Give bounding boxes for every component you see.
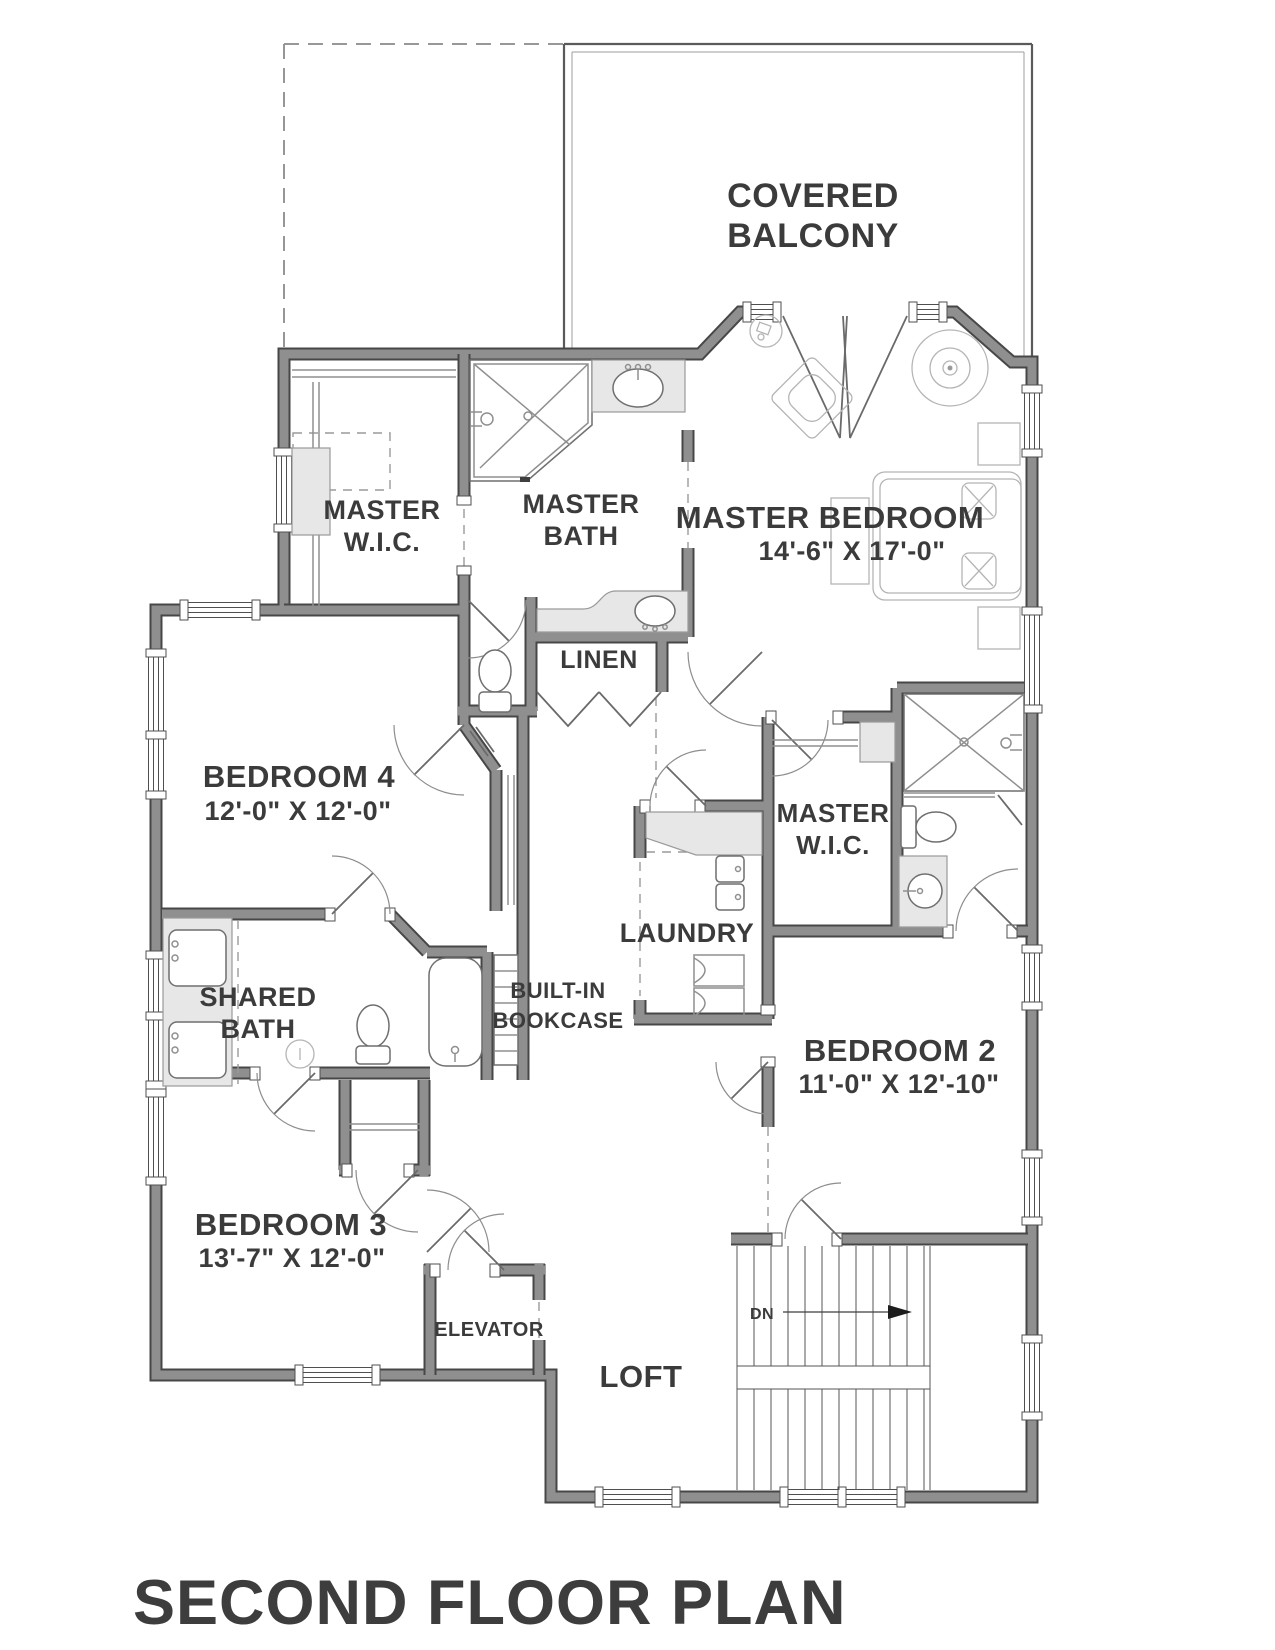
master-wic-right-door [772, 720, 828, 776]
window [146, 1089, 166, 1185]
room-label-bedroom2: BEDROOM 2 [804, 1033, 996, 1068]
master-bedroom-entry-door [688, 652, 762, 726]
window [595, 1487, 680, 1507]
bedroom3-entry-door [427, 1190, 489, 1252]
room-label-bookcase-1: BUILT-IN [510, 978, 605, 1003]
room-label-bedroom3: BEDROOM 3 [195, 1207, 387, 1242]
room-dims-bedroom2: 11'-0" X 12'-10" [798, 1069, 999, 1099]
window [1022, 1150, 1042, 1225]
room-label-shared-bath-1: SHARED [199, 982, 316, 1012]
stairs-dn-label: DN [750, 1306, 774, 1323]
window [1022, 945, 1042, 1010]
nightstand [978, 423, 1020, 465]
room-label-covered-balcony-1: COVERED [727, 177, 899, 215]
window [1022, 607, 1042, 713]
floor-plan-page: DN COVERED BALCONY MASTER W.I.C. MASTER … [0, 0, 1275, 1650]
nightstand [978, 607, 1020, 649]
bedroom2-bath-door [956, 869, 1018, 931]
room-label-master-wic-right-1: MASTER [777, 798, 890, 828]
floor-drain [286, 1040, 314, 1068]
room-label-bedroom4: BEDROOM 4 [203, 759, 396, 794]
room-label-master-wic-left-2: W.I.C. [344, 527, 421, 557]
direction-arrow [783, 1305, 912, 1319]
window [295, 1365, 380, 1385]
laundry-fixtures [646, 812, 762, 1019]
window [274, 448, 294, 532]
ceiling-fan [912, 330, 988, 406]
master-bath-vanity-bottom [537, 591, 688, 632]
window [743, 302, 781, 322]
room-dims-master-bedroom: 14'-6" X 17'-0" [758, 536, 945, 566]
master-wic-left-shelving [292, 370, 456, 606]
staircase: DN [737, 1246, 930, 1490]
linen-bifold-doors [537, 692, 661, 726]
plan-title: SECOND FLOOR PLAN [133, 1568, 847, 1638]
bay-door-opening [779, 305, 911, 319]
bedroom4-closet-rod [508, 775, 514, 905]
master-bedroom-furniture [750, 315, 1021, 649]
room-label-laundry: LAUNDRY [620, 918, 755, 948]
floor-plan-canvas: DN COVERED BALCONY MASTER W.I.C. MASTER … [0, 0, 1275, 1650]
bedroom3-closet-rod [348, 1124, 420, 1130]
room-label-master-wic-left-1: MASTER [324, 495, 441, 525]
room-label-bookcase-2: BOOKCASE [492, 1008, 623, 1033]
window [180, 600, 260, 620]
pillows [962, 483, 996, 589]
window [909, 302, 947, 322]
room-label-elevator: ELEVATOR [434, 1319, 544, 1341]
room-label-covered-balcony-2: BALCONY [727, 217, 899, 255]
roof-outline-dashed [284, 44, 564, 352]
bedroom2-loft-door [716, 1062, 768, 1114]
window [1022, 385, 1042, 457]
room-label-shared-bath-2: BATH [221, 1014, 296, 1044]
window [1022, 1335, 1042, 1420]
room-dims-bedroom3: 13'-7" X 12'-0" [198, 1243, 385, 1273]
shared-bath-hall-door [332, 856, 390, 914]
master-bath-vanity-top [592, 360, 685, 412]
room-label-linen: LINEN [560, 646, 638, 674]
laundry-door [650, 750, 706, 806]
room-label-master-bedroom: MASTER BEDROOM [676, 500, 984, 535]
water-closet-toilet [479, 650, 511, 712]
bedroom4-closet-door [394, 725, 464, 795]
shared-bath-bed3-door [257, 1073, 315, 1131]
bedroom2-stair-door [785, 1183, 841, 1239]
bathtub [429, 958, 482, 1066]
stair-treads [737, 1246, 930, 1490]
bay-double-doors [783, 316, 907, 438]
window [780, 1487, 905, 1507]
wc-door [468, 600, 526, 658]
master-wic-right-shelving [772, 722, 895, 762]
master-bath-corner-shower [470, 360, 592, 482]
room-label-loft: LOFT [600, 1359, 683, 1394]
bedroom2-bath-fixtures [899, 694, 1024, 927]
window [146, 649, 166, 799]
room-dims-bedroom4: 12'-0" X 12'-0" [204, 796, 391, 826]
room-label-master-bath-2: BATH [544, 521, 619, 551]
room-label-master-bath-1: MASTER [523, 489, 640, 519]
room-label-master-wic-right-2: W.I.C. [796, 830, 870, 860]
